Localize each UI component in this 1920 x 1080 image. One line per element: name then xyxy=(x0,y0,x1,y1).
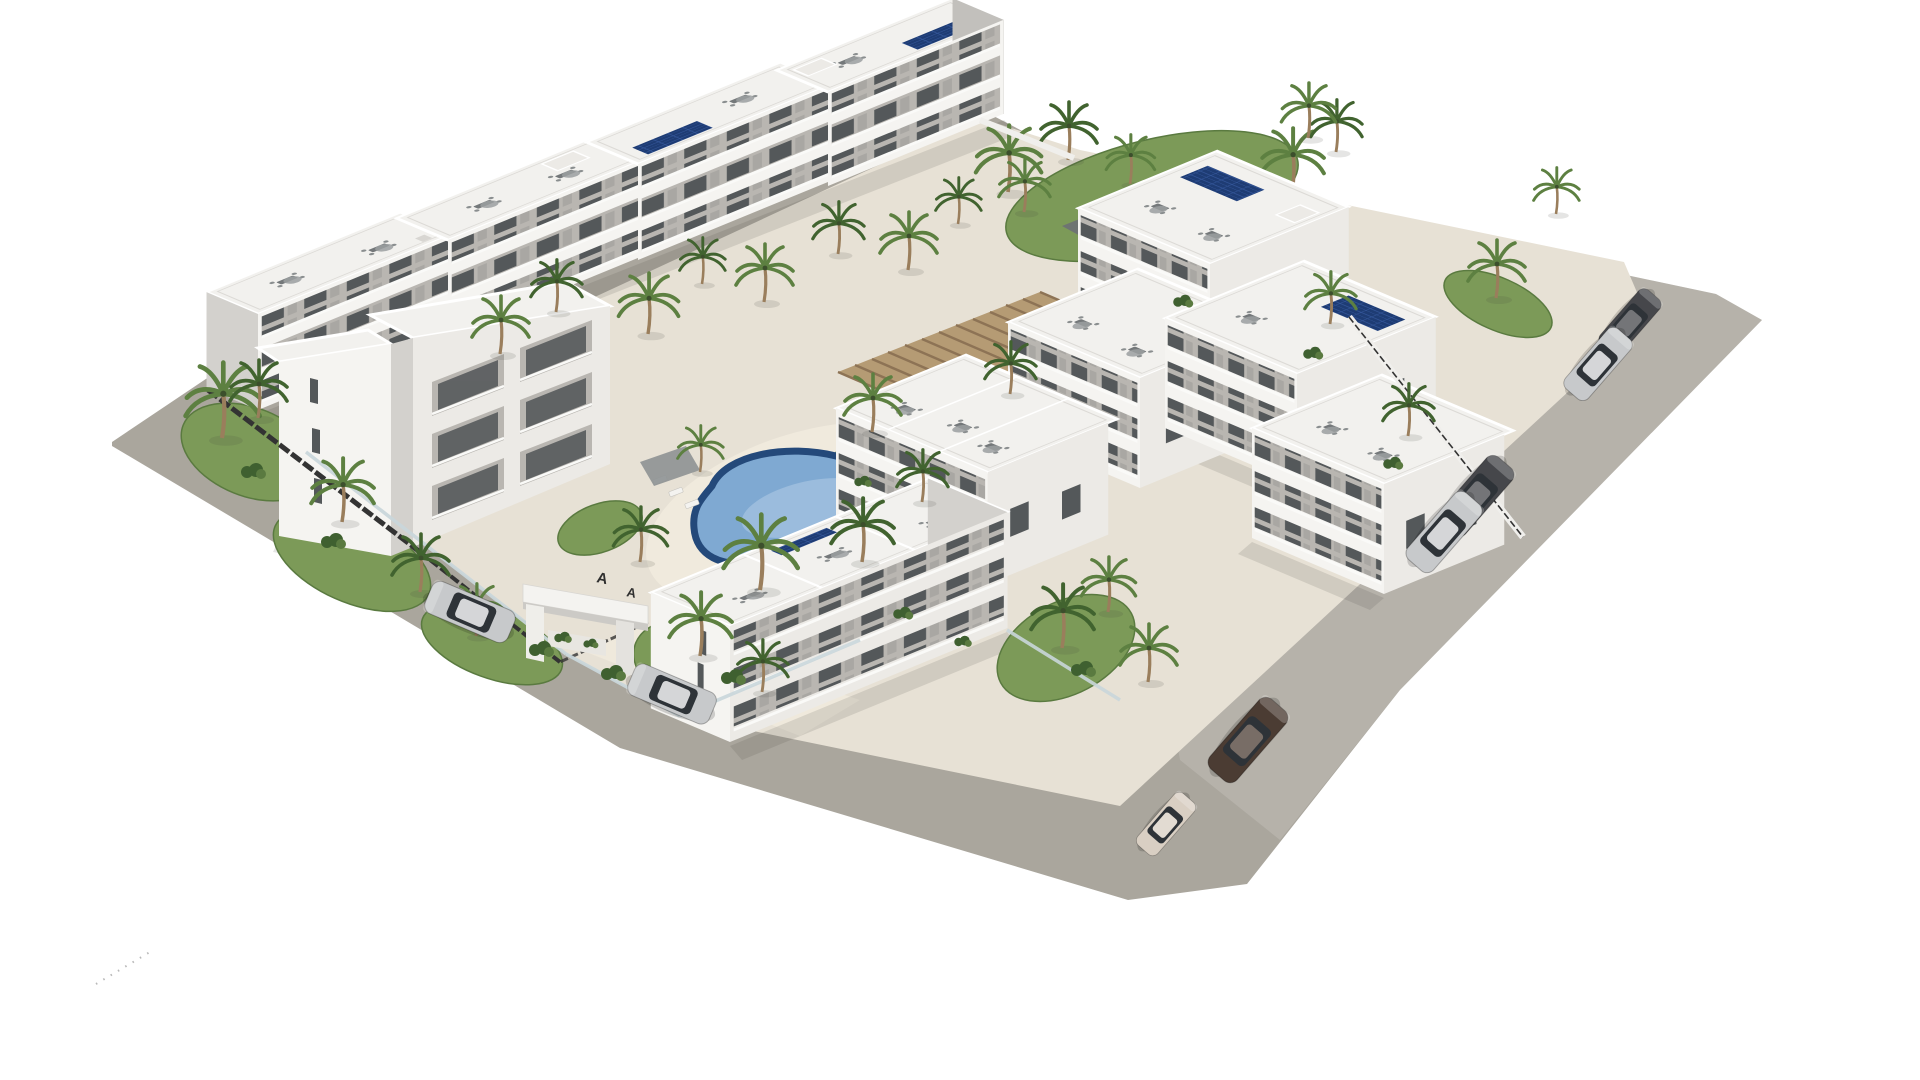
render-canvas: A A xyxy=(0,0,1920,1080)
artifact-dotted-line xyxy=(96,952,150,984)
complex-render: A A xyxy=(0,0,1920,1080)
